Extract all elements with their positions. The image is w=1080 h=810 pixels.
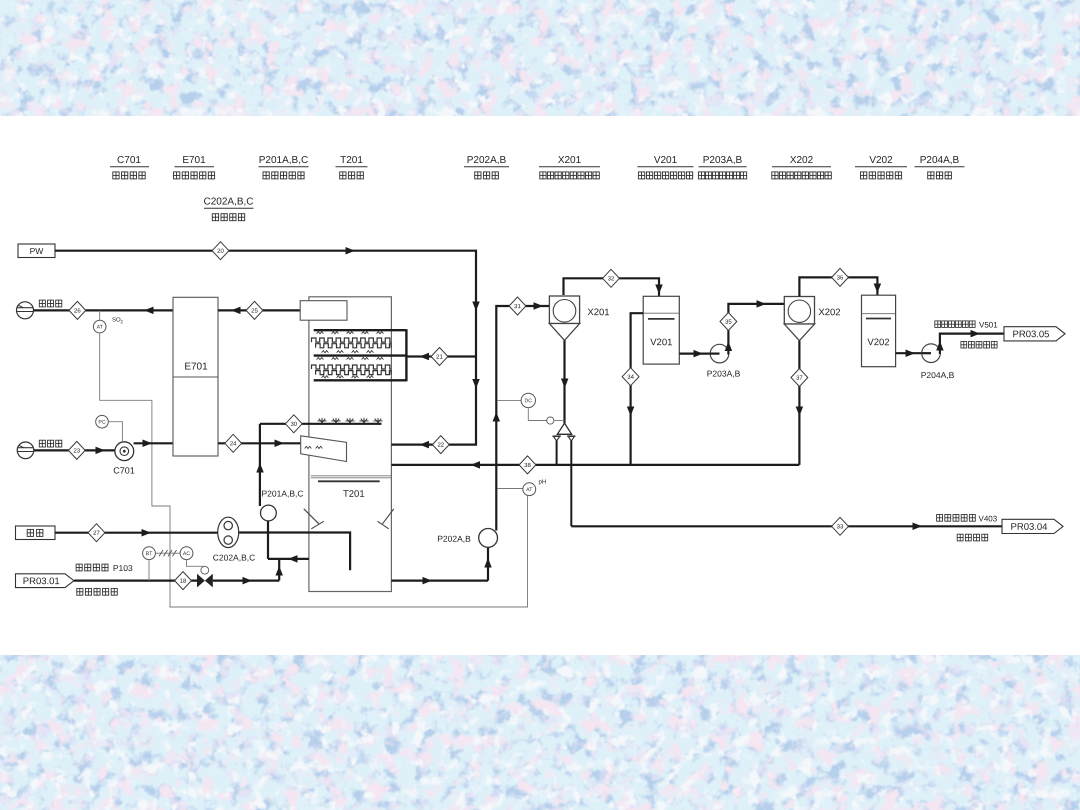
svg-text:P202A,B: P202A,B bbox=[467, 155, 507, 166]
svg-text:P202A,B: P202A,B bbox=[437, 534, 471, 544]
svg-text:18: 18 bbox=[180, 578, 187, 585]
svg-text:PC: PC bbox=[98, 420, 105, 426]
svg-text:PW: PW bbox=[30, 246, 44, 256]
svg-text:24: 24 bbox=[230, 440, 237, 447]
svg-text:E701: E701 bbox=[182, 155, 206, 166]
svg-text:35: 35 bbox=[725, 319, 732, 326]
svg-text:34: 34 bbox=[627, 374, 634, 381]
svg-text:P204A,B: P204A,B bbox=[921, 370, 955, 380]
svg-text:V202: V202 bbox=[869, 155, 893, 166]
svg-text:20: 20 bbox=[217, 248, 224, 255]
svg-text:T201: T201 bbox=[340, 155, 363, 166]
svg-text:30: 30 bbox=[290, 421, 297, 428]
svg-text:P203A,B: P203A,B bbox=[703, 155, 743, 166]
svg-text:pH: pH bbox=[538, 479, 546, 486]
svg-text:38: 38 bbox=[524, 462, 531, 469]
svg-text:PR03.01: PR03.01 bbox=[23, 576, 60, 587]
svg-text:21: 21 bbox=[436, 354, 443, 361]
svg-text:22: 22 bbox=[437, 442, 444, 449]
svg-text:27: 27 bbox=[93, 530, 100, 537]
svg-text:V501: V501 bbox=[979, 321, 998, 330]
svg-text:23: 23 bbox=[73, 447, 80, 454]
svg-text:P201A,B,C: P201A,B,C bbox=[261, 488, 303, 498]
svg-text:C701: C701 bbox=[113, 465, 135, 475]
svg-text:AT: AT bbox=[526, 487, 533, 493]
svg-text:V201: V201 bbox=[650, 337, 672, 348]
svg-text:P203A,B: P203A,B bbox=[707, 368, 741, 378]
svg-text:C202A,B,C: C202A,B,C bbox=[213, 552, 256, 562]
svg-text:T201: T201 bbox=[343, 489, 365, 500]
svg-text:25: 25 bbox=[251, 307, 258, 314]
svg-text:X202: X202 bbox=[818, 307, 840, 318]
svg-text:V403: V403 bbox=[978, 514, 997, 523]
svg-text:PR03.05: PR03.05 bbox=[1013, 329, 1050, 340]
svg-text:AC: AC bbox=[183, 551, 190, 557]
svg-text:X201: X201 bbox=[587, 307, 609, 318]
svg-text:X202: X202 bbox=[790, 155, 814, 166]
svg-text:32: 32 bbox=[608, 275, 615, 282]
svg-text:C202A,B,C: C202A,B,C bbox=[203, 196, 253, 207]
svg-text:E701: E701 bbox=[184, 361, 208, 372]
svg-text:X201: X201 bbox=[558, 155, 582, 166]
svg-text:AT: AT bbox=[97, 324, 104, 330]
svg-text:BT: BT bbox=[146, 551, 153, 557]
svg-text:V201: V201 bbox=[654, 155, 678, 166]
svg-text:37: 37 bbox=[796, 375, 803, 382]
svg-text:P201A,B,C: P201A,B,C bbox=[259, 155, 309, 166]
svg-text:36: 36 bbox=[837, 274, 844, 281]
svg-text:P103: P103 bbox=[110, 563, 133, 573]
svg-text:PR03.04: PR03.04 bbox=[1011, 522, 1048, 533]
svg-text:P204A,B: P204A,B bbox=[920, 155, 960, 166]
svg-text:C701: C701 bbox=[117, 155, 141, 166]
svg-text:26: 26 bbox=[74, 307, 81, 314]
svg-text:DC: DC bbox=[525, 398, 533, 404]
svg-text:31: 31 bbox=[514, 303, 521, 310]
svg-text:V202: V202 bbox=[867, 337, 889, 348]
svg-text:33: 33 bbox=[837, 523, 844, 530]
